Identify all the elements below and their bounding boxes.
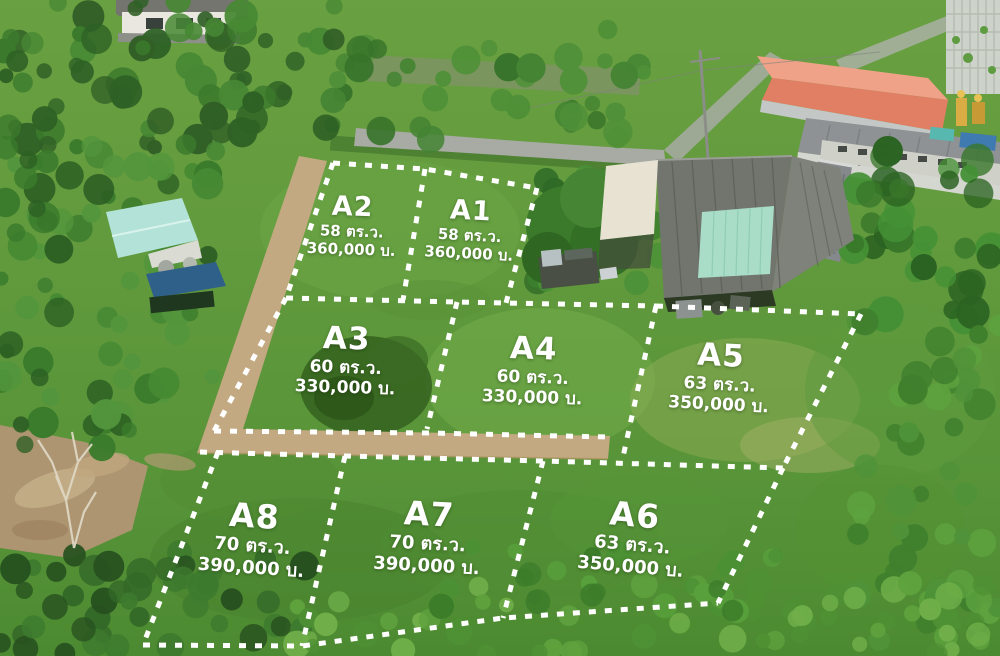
- plot-price: 330,000 บ.: [481, 386, 582, 410]
- plot-label-a5: A5 63 ตร.ว. 350,000 บ.: [668, 336, 772, 418]
- plot-price: 330,000 บ.: [294, 376, 395, 400]
- plot-label-a6: A6 63 ตร.ว. 350,000 บ.: [576, 492, 689, 582]
- aerial-photo: [0, 0, 1000, 656]
- plot-label-a1: A1 58 ตร.ว. 360,000 บ.: [424, 193, 516, 265]
- plot-label-a2: A2 58 ตร.ว. 360,000 บ.: [306, 190, 397, 260]
- plot-id: A5: [670, 336, 772, 377]
- plot-id: A4: [483, 330, 585, 369]
- plot-label-a4: A4 60 ตร.ว. 330,000 บ.: [481, 330, 584, 410]
- plot-label-a8: A8 70 ตร.ว. 390,000 บ.: [197, 494, 309, 582]
- plot-id: A7: [375, 493, 483, 536]
- plot-id: A3: [296, 320, 398, 359]
- plot-price: 360,000 บ.: [306, 239, 395, 260]
- plot-label-a7: A7 70 ตร.ว. 390,000 บ.: [373, 493, 484, 580]
- plot-id: A1: [426, 193, 516, 229]
- land-plot-advert: A2 58 ตร.ว. 360,000 บ. A1 58 ตร.ว. 360,0…: [0, 0, 1000, 656]
- plot-id: A2: [308, 190, 398, 224]
- plot-label-a3: A3 60 ตร.ว. 330,000 บ.: [294, 320, 397, 400]
